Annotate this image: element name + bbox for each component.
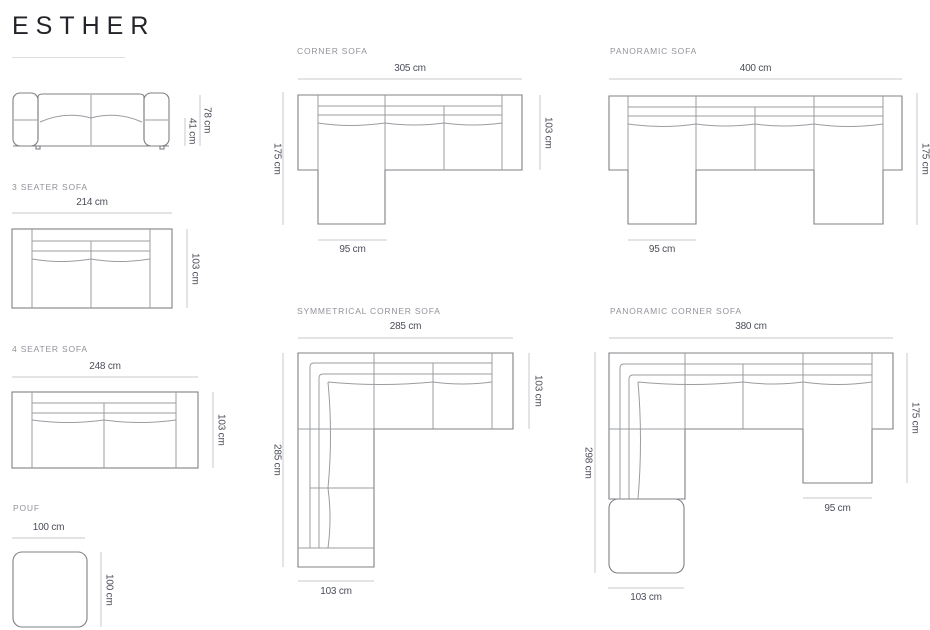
panoramic-corner-chaise-width-dim: 95 cm <box>803 503 872 514</box>
side-view-height-dim: 78 cm <box>201 94 213 146</box>
panoramic-corner-chaise-length-dim: 175 cm <box>909 353 921 483</box>
panoramic-corner-side-length-dim: 298 cm <box>582 352 594 573</box>
spec-sheet: ESTHER 78 cm 41 cm 3 SEATER SOFA 214 cm … <box>0 0 930 630</box>
panoramic-sofa-label: PANORAMIC SOFA <box>610 46 697 56</box>
symmetrical-width-dim: 285 cm <box>298 321 513 332</box>
panoramic-sofa-drawing <box>609 96 902 224</box>
three-seater-width-dim: 214 cm <box>12 197 172 208</box>
pouf-depth-dim: 100 cm <box>103 552 115 627</box>
title-underline <box>12 57 125 58</box>
corner-depth-dim: 103 cm <box>542 95 554 170</box>
panoramic-corner-sofa-drawing <box>609 353 893 573</box>
corner-sofa-label: CORNER SOFA <box>297 46 368 56</box>
panoramic-chaise-length-dim: 175 cm <box>919 93 930 225</box>
corner-chaise-length-dim: 175 cm <box>271 92 283 225</box>
symmetrical-corner-sofa-drawing <box>298 353 513 567</box>
symmetrical-corner-sofa-label: SYMMETRICAL CORNER SOFA <box>297 306 441 316</box>
three-seater-drawing <box>12 229 172 308</box>
side-view-seat-height-dim: 41 cm <box>186 113 198 149</box>
pouf-label: POUF <box>13 503 40 513</box>
panoramic-width-dim: 400 cm <box>609 63 902 74</box>
panoramic-corner-corner-width-dim: 103 cm <box>608 592 684 603</box>
four-seater-label: 4 SEATER SOFA <box>12 344 88 354</box>
pouf-drawing <box>13 552 87 627</box>
corner-sofa-drawing <box>298 95 522 224</box>
three-seater-depth-dim: 103 cm <box>189 229 201 308</box>
dimension-drawings <box>0 0 930 630</box>
corner-chaise-width-dim: 95 cm <box>318 244 387 255</box>
pouf-width-dim: 100 cm <box>12 522 85 533</box>
page-title: ESTHER <box>12 12 155 41</box>
corner-width-dim: 305 cm <box>298 63 522 74</box>
four-seater-depth-dim: 103 cm <box>215 392 227 468</box>
three-seater-label: 3 SEATER SOFA <box>12 182 88 192</box>
four-seater-width-dim: 248 cm <box>12 361 198 372</box>
symmetrical-side-length-dim: 285 cm <box>271 353 283 567</box>
panoramic-chaise-width-dim: 95 cm <box>628 244 696 255</box>
four-seater-drawing <box>12 392 198 468</box>
panoramic-corner-width-dim: 380 cm <box>609 321 893 332</box>
symmetrical-depth-dim: 103 cm <box>532 353 544 429</box>
symmetrical-side-width-dim: 103 cm <box>298 586 374 597</box>
panoramic-corner-sofa-label: PANORAMIC CORNER SOFA <box>610 306 742 316</box>
side-view-drawing <box>13 93 169 149</box>
